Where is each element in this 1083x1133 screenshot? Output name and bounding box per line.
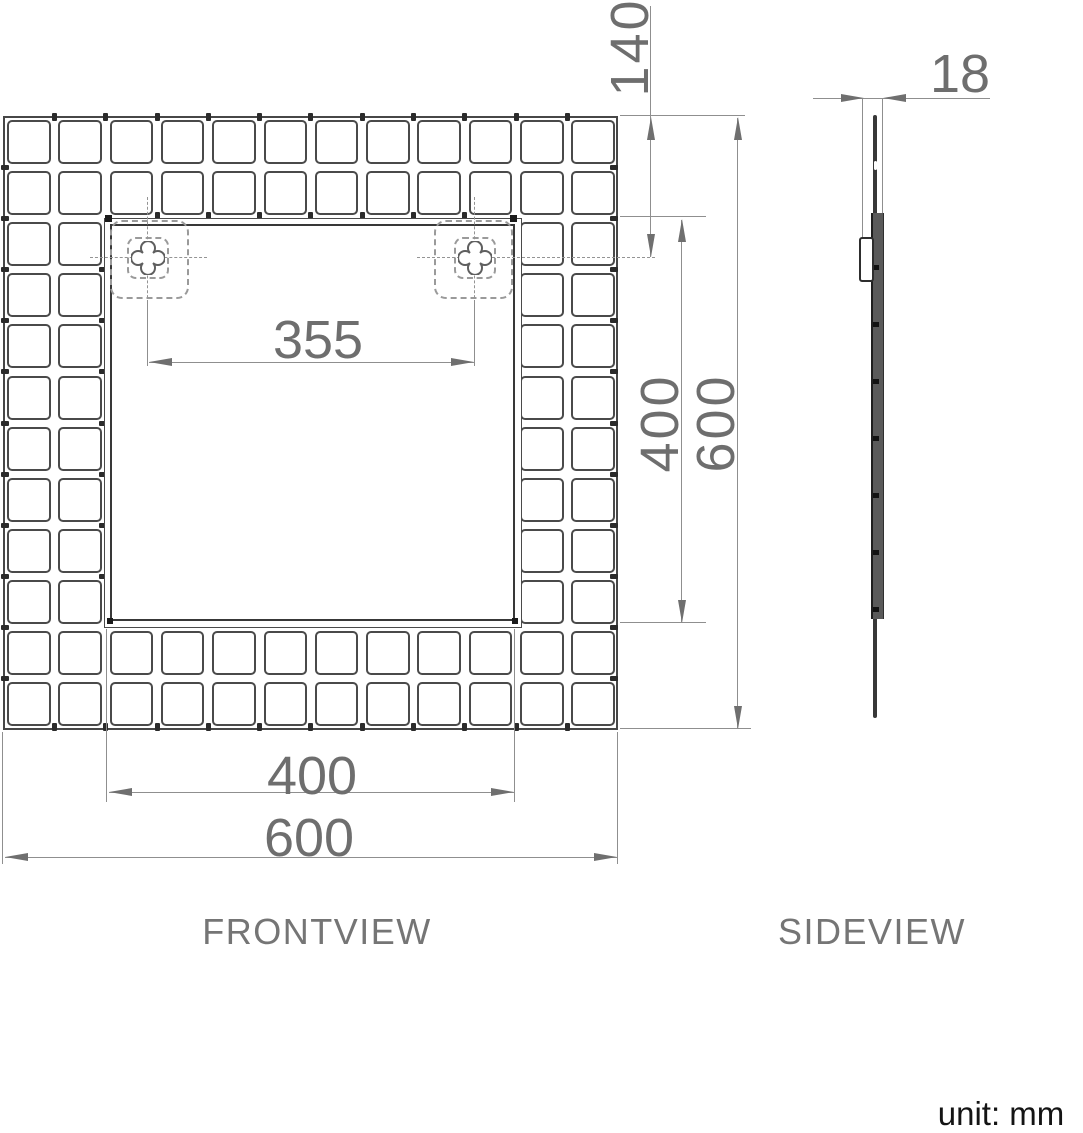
arrowhead [841, 94, 864, 102]
screw-hole-icon [131, 241, 165, 275]
unit-note: unit: mm [938, 1095, 1065, 1133]
technical-drawing-canvas: 355 140 400 600 400 600 FRONTV [0, 0, 1083, 1133]
side-view-label: SIDEVIEW [778, 911, 966, 953]
hanger-notch [874, 161, 877, 170]
wall-bracket-profile [859, 237, 874, 282]
side-view: 18 SIDEVIEW [0, 0, 1083, 1133]
extension-line [882, 99, 883, 222]
extension-line [862, 99, 863, 238]
arrowhead [883, 94, 906, 102]
dim-label-thickness: 18 [930, 47, 990, 101]
screw-hole-icon [458, 241, 492, 275]
